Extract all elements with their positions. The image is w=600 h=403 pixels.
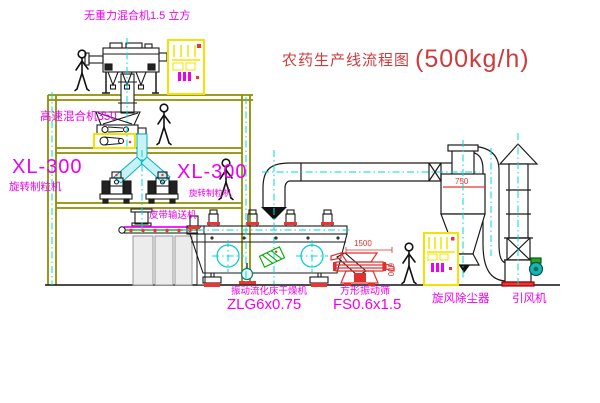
- title-text: 农药生产线流程图: [282, 49, 410, 70]
- storage-bins-drawing: [133, 236, 192, 285]
- screen-drawing: [331, 247, 394, 286]
- person-figure: [75, 50, 89, 90]
- person-figure: [157, 104, 171, 144]
- control-cabinet-2: [424, 233, 458, 285]
- label-cyclone: 旋风除尘器: [432, 294, 490, 306]
- label-screen-model: FS0.6x1.5: [333, 297, 401, 312]
- person-figure: [402, 243, 416, 283]
- diagram-title: 农药生产线流程图 (500kg/h): [282, 45, 530, 74]
- dimension-screen-width: 600: [386, 263, 394, 276]
- control-cabinet-1: [168, 40, 204, 94]
- label-fan: 引风机: [512, 294, 547, 306]
- dimension-cyclone-width: 750: [455, 178, 468, 186]
- title-capacity: (500kg/h): [415, 45, 530, 74]
- label-belt-conveyor: 皮带输送机: [149, 211, 197, 221]
- label-gravity-mixer: 无重力混合机1.5 立方: [84, 11, 190, 22]
- label-granulator-left-name: 旋转制粒机: [9, 182, 62, 193]
- gravity-mixer-drawing: [85, 43, 167, 93]
- fan-drawing: [502, 258, 543, 286]
- label-high-speed-mixer: 高速混合机350: [40, 112, 117, 124]
- label-dryer-model: ZLG6x0.75: [227, 297, 301, 312]
- dryer-logo: [259, 247, 284, 267]
- label-granulator-right-model: XL-300: [177, 162, 248, 182]
- label-granulator-left-model: XL-300: [12, 157, 83, 177]
- label-granulator-right-name: 旋转制粒机: [189, 189, 232, 198]
- dimension-screen-length: 1500: [354, 240, 372, 248]
- cad-flow-diagram: 农药生产线流程图 (500kg/h) 无重力混合机1.5 立方 高速混合机350…: [0, 0, 600, 403]
- dryer-drawing: [187, 210, 366, 287]
